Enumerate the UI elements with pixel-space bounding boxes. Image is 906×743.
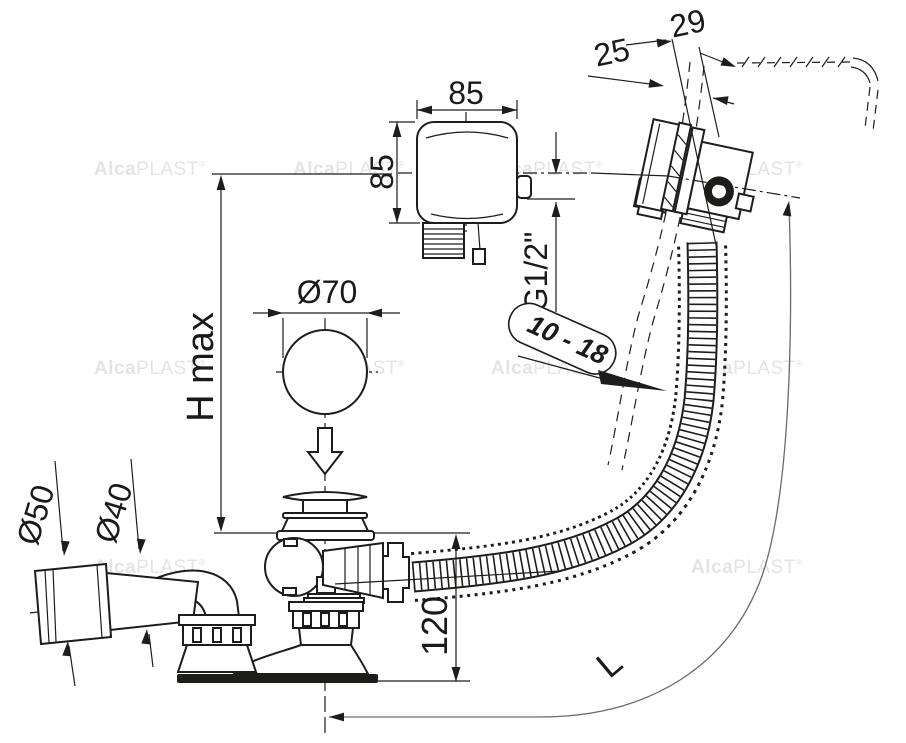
base-plate — [177, 674, 378, 683]
overflow-nipple — [736, 194, 754, 212]
dimension-thread: G1/2" — [518, 132, 575, 312]
drawing-svg: 85 85 29 25 G1/2" — [0, 0, 906, 743]
dim-knob-height-label: 85 — [364, 154, 400, 190]
dim-plug-diameter-label: Ø70 — [297, 274, 357, 310]
technical-drawing-canvas: AlcaPLAST®AlcaPLAST®AlcaPLAST®AlcaPLAST®… — [0, 0, 906, 743]
knob-thread — [423, 223, 464, 258]
knob-cable — [478, 223, 480, 250]
insert-arrow — [308, 428, 342, 474]
knob-cable-end — [473, 249, 485, 264]
dim-knob-width-label: 85 — [448, 75, 484, 111]
corrugated-hose — [413, 242, 703, 577]
union-nut-flange — [289, 602, 363, 611]
dim-outlet-small-label: Ø40 — [87, 479, 139, 547]
dimension-wall-range: 10 - 18 — [502, 297, 667, 391]
dim-height-max-label: H max — [180, 312, 222, 422]
bath-rim-section — [737, 57, 878, 131]
hose-nut — [383, 543, 409, 602]
knob-side-outlet — [517, 176, 531, 198]
dim-outlet-large-label: Ø50 — [9, 481, 61, 549]
dim-hose-length-label: L — [588, 641, 630, 685]
elbow-nut-flange — [179, 615, 255, 625]
control-knob — [417, 122, 531, 264]
plug-neck — [303, 500, 347, 513]
knob-body — [417, 122, 517, 223]
dim-under-bath-depth-label: 120 — [414, 596, 455, 656]
overflow-unit — [633, 117, 766, 237]
dimension-knob-width: 85 — [417, 75, 517, 119]
plug-circle — [283, 330, 367, 414]
dim-thread-label: G1/2" — [518, 232, 554, 313]
plug-taper — [282, 518, 368, 531]
dim-rim-inner-label: 25 — [591, 31, 633, 74]
elbow-skirt — [178, 645, 256, 672]
dim-rim-total-label: 29 — [667, 2, 709, 45]
plug-top-view — [283, 330, 367, 474]
dimension-height-max: H max — [180, 175, 225, 532]
